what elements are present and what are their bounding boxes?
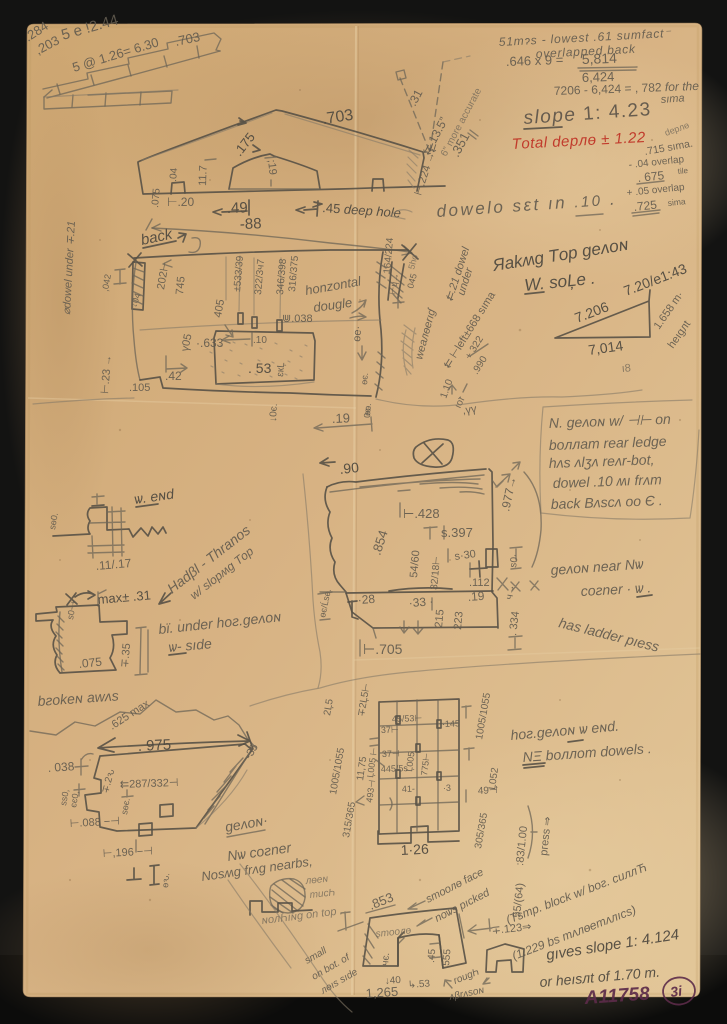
svg-text:↳.53: ↳.53: [407, 978, 430, 991]
svg-text:745: 745: [174, 276, 188, 295]
svg-text:↓0є.: ↓0є.: [268, 403, 280, 422]
svg-text:.45: .45: [426, 948, 438, 963]
svg-text:.19: .19: [467, 589, 485, 604]
svg-text:.42: .42: [165, 369, 182, 383]
svg-text:·33 ·: ·33 ·: [408, 594, 434, 610]
svg-text:sima: sima: [667, 196, 686, 208]
svg-text:0є.: 0є.: [362, 405, 373, 418]
svg-text:.04: .04: [168, 167, 180, 182]
svg-text:. 53: . 53: [248, 360, 272, 376]
svg-text:ı8: ı8: [621, 362, 631, 375]
svg-text:өԅ.: өԅ.: [160, 872, 171, 888]
svg-text:41-: 41-: [402, 784, 415, 794]
svg-text:45/53⊢: 45/53⊢: [392, 713, 423, 724]
svg-text:. 038: . 038: [47, 759, 75, 775]
svg-text:555: 555: [441, 948, 453, 966]
svg-text:37⊣: 37⊣: [382, 748, 400, 759]
svg-text:⋓.038: ⋓.038: [282, 313, 313, 325]
svg-text:.646 x 9 =: .646 x 9 =: [506, 52, 564, 69]
svg-text:.19: .19: [332, 410, 351, 426]
svg-text:⊢.705: ⊢.705: [363, 641, 403, 657]
svg-text:.10: .10: [253, 335, 267, 346]
svg-text:1,265: 1,265: [365, 984, 399, 1001]
svg-text:223: 223: [452, 611, 466, 630]
svg-text:5,814: 5,814: [582, 50, 618, 67]
svg-text:∓.35: ∓.35: [119, 643, 133, 668]
svg-text:215: 215: [433, 609, 447, 628]
svg-text:37⊢: 37⊢: [381, 724, 399, 735]
svg-text:.075: .075: [150, 187, 163, 208]
svg-text:⊢.20: ⊢.20: [167, 195, 194, 209]
svg-text:өе·: өе·: [351, 325, 364, 342]
svg-text:11.7: 11.7: [197, 165, 210, 186]
svg-text:ɛкĻ: ɛкĻ: [275, 361, 287, 377]
svg-text:⇇287/332⊣: ⇇287/332⊣: [120, 777, 179, 791]
svg-text:ѕ0·: ѕ0·: [508, 553, 521, 568]
svg-text:·28: ·28: [357, 592, 376, 607]
svg-text:ѕ.397: ѕ.397: [441, 525, 473, 540]
svg-text:49⊣: 49⊣: [478, 785, 498, 797]
svg-text:.49: .49: [227, 199, 248, 217]
svg-text:tile: tile: [677, 166, 689, 176]
svg-text:.105: .105: [129, 382, 150, 394]
svg-text:чє.: чє.: [380, 952, 392, 966]
svg-text:.90: .90: [339, 459, 360, 477]
svg-text:-88: -88: [240, 215, 262, 233]
svg-text:⊢.428: ⊢.428: [403, 506, 440, 521]
svg-text:;19: ;19: [265, 159, 279, 175]
svg-text:.075: .075: [78, 655, 103, 671]
svg-text:·145: ·145: [442, 718, 460, 729]
svg-text:54/60: 54/60: [408, 550, 422, 578]
svg-text:өє.: өє.: [359, 372, 370, 385]
svg-text:sıma: sıma: [660, 92, 685, 106]
svg-text:1·26: 1·26: [400, 841, 429, 858]
svg-text:·3: ·3: [443, 783, 451, 793]
svg-text:·.633: ·.633: [196, 336, 224, 350]
svg-text:.112: .112: [469, 577, 490, 589]
svg-text:,үү: ,үү: [462, 403, 478, 417]
